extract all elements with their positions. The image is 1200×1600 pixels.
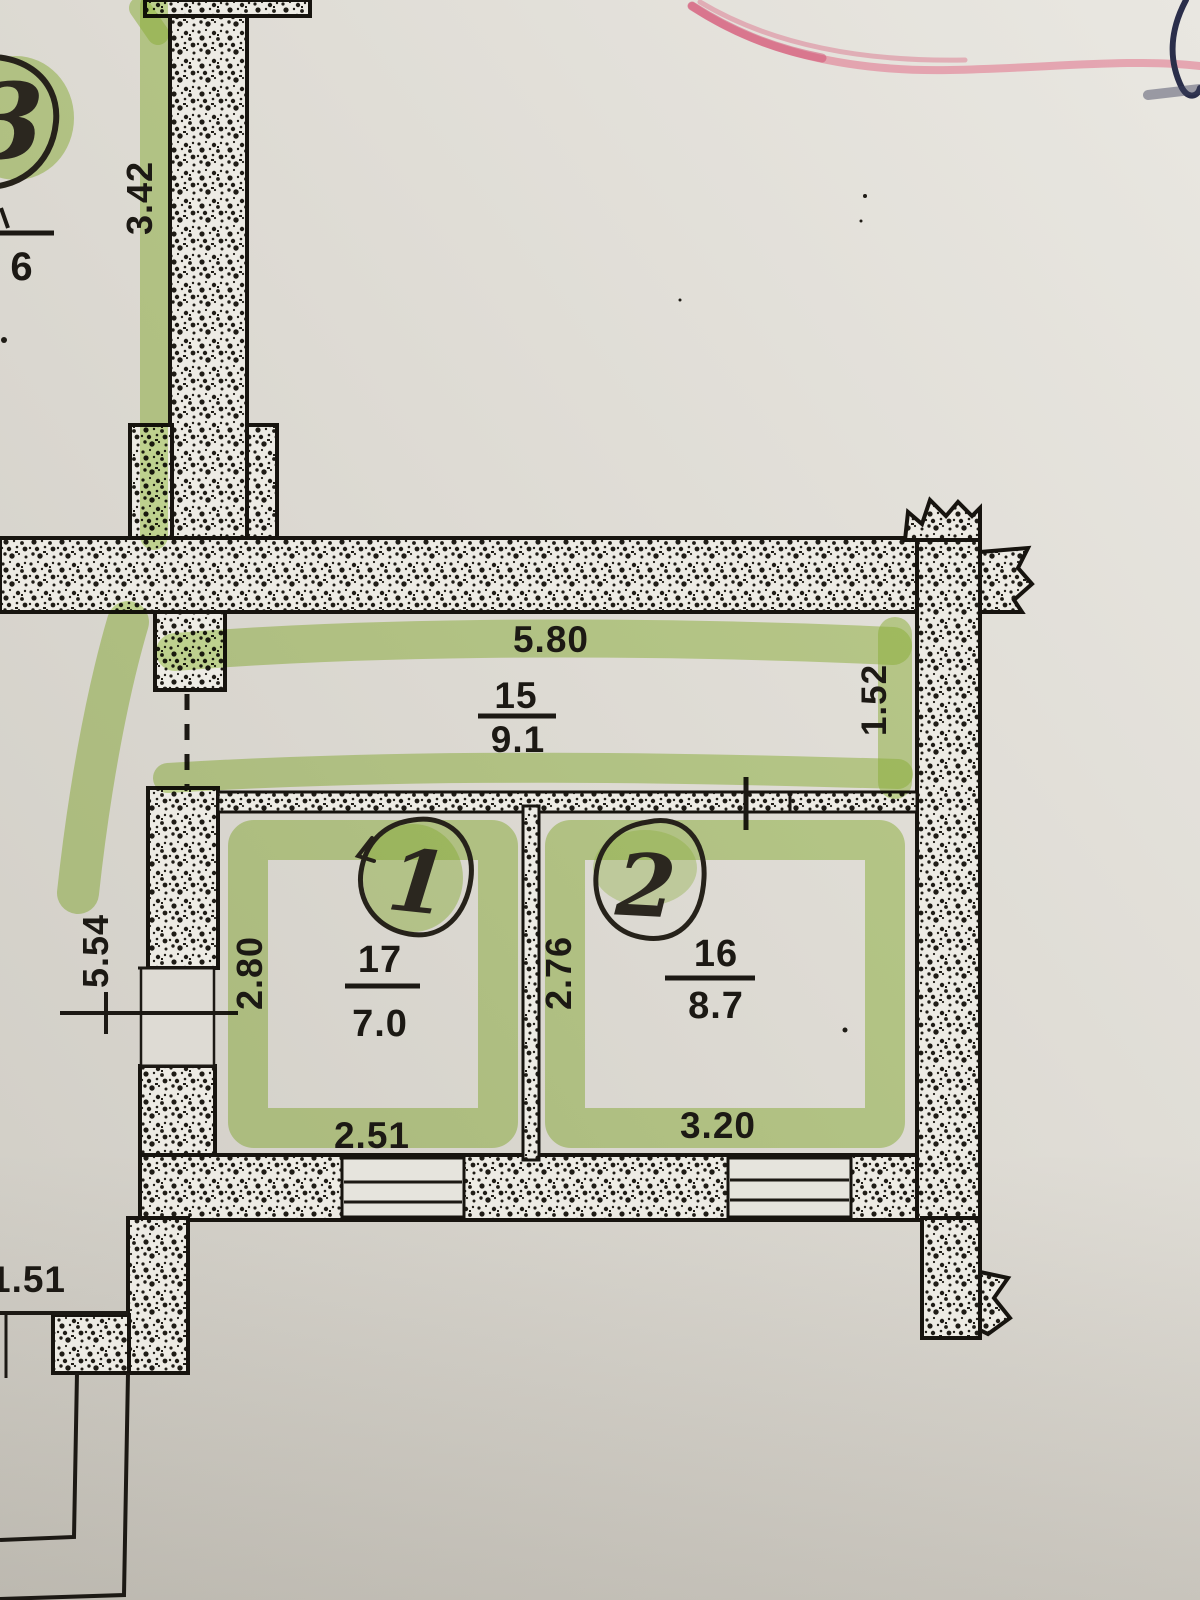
dim-1-51: 1.51 [0,1259,66,1300]
partial-area-6: 6 [10,245,33,289]
wall-left-pillar [148,788,218,968]
hand-mark-3: 3 [0,60,44,183]
wall-bottom-left-stub [53,1315,129,1373]
wall-top-shaft [170,0,247,545]
wall-right [917,538,980,1220]
wall-bottom-left [128,1218,188,1373]
dim-2-51: 2.51 [334,1115,410,1156]
wall-right-lower [922,1218,980,1338]
room-17-number: 17 [358,939,402,981]
floor-plan-drawing: 3.42 6 5.80 15 9.1 1.52 5.54 2.80 17 7.0… [0,0,1200,1600]
hand-mark-2: 2 [612,834,678,938]
room-17-area: 7.0 [352,1003,408,1045]
window-left-wall [138,968,217,1066]
wall-top-cap [145,0,310,16]
floor-plan-photo: 3.42 6 5.80 15 9.1 1.52 5.54 2.80 17 7.0… [0,0,1200,1600]
wall-right-bump [247,425,277,543]
wall-interior-corridor [218,792,917,812]
dim-3-42: 3.42 [119,161,160,235]
wall-bottom-band [140,1155,980,1220]
room-15-number: 15 [494,675,537,716]
hand-mark-1: 1 [383,829,453,936]
window-room16 [728,1158,851,1217]
dim-2-76: 2.76 [538,936,579,1010]
window-room17 [342,1158,464,1217]
wall-left-lower [140,1066,215,1166]
room-15-area: 9.1 [491,719,545,760]
dim-3-20: 3.20 [680,1105,756,1146]
dim-5-54: 5.54 [75,914,116,988]
dim-5-80: 5.80 [513,619,589,660]
room-16-number: 16 [694,933,738,975]
wall-horizontal-band [0,538,980,612]
dim-2-80: 2.80 [229,936,270,1010]
dim-1-52: 1.52 [855,664,894,736]
room-16-area: 8.7 [688,985,744,1027]
wall-divider-rooms [523,806,539,1160]
